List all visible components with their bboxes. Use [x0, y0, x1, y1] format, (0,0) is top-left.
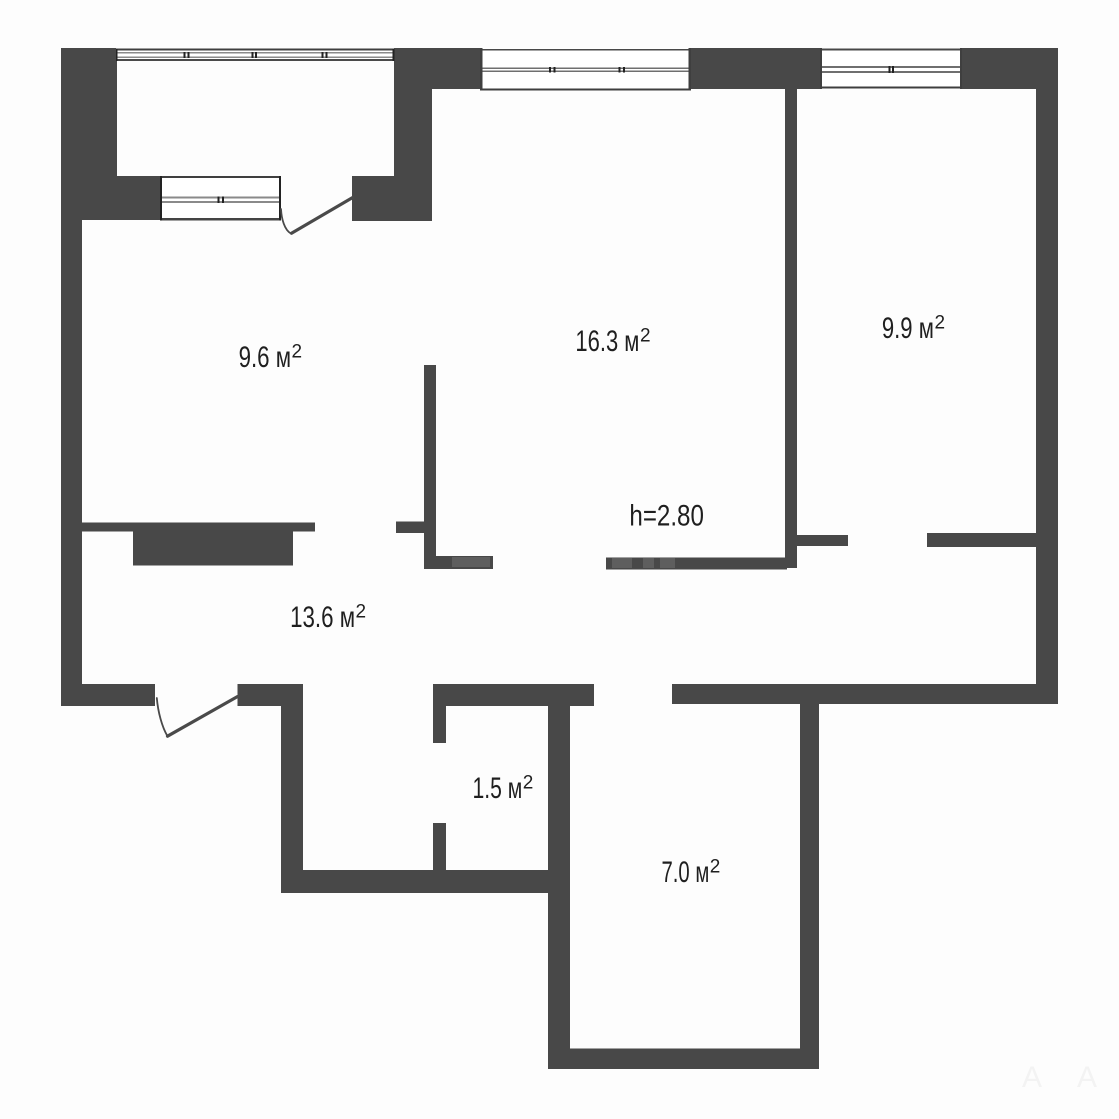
svg-text:2: 2	[523, 773, 534, 794]
svg-text:9.9 м: 9.9 м	[882, 312, 934, 345]
svg-text:16.3 м: 16.3 м	[575, 325, 639, 358]
svg-text:2: 2	[292, 341, 303, 362]
svg-text:2: 2	[935, 313, 946, 334]
svg-text:А: А	[1077, 1061, 1097, 1094]
svg-text:2: 2	[710, 857, 721, 878]
svg-text:h=2.80: h=2.80	[629, 500, 704, 533]
svg-text:1.5 м: 1.5 м	[473, 772, 523, 805]
svg-text:А: А	[1022, 1061, 1042, 1094]
svg-text:13.6 м: 13.6 м	[290, 601, 355, 634]
svg-text:9.6 м: 9.6 м	[239, 341, 292, 374]
svg-text:2: 2	[356, 602, 367, 623]
svg-text:2: 2	[640, 326, 651, 347]
svg-text:7.0 м: 7.0 м	[662, 856, 710, 889]
